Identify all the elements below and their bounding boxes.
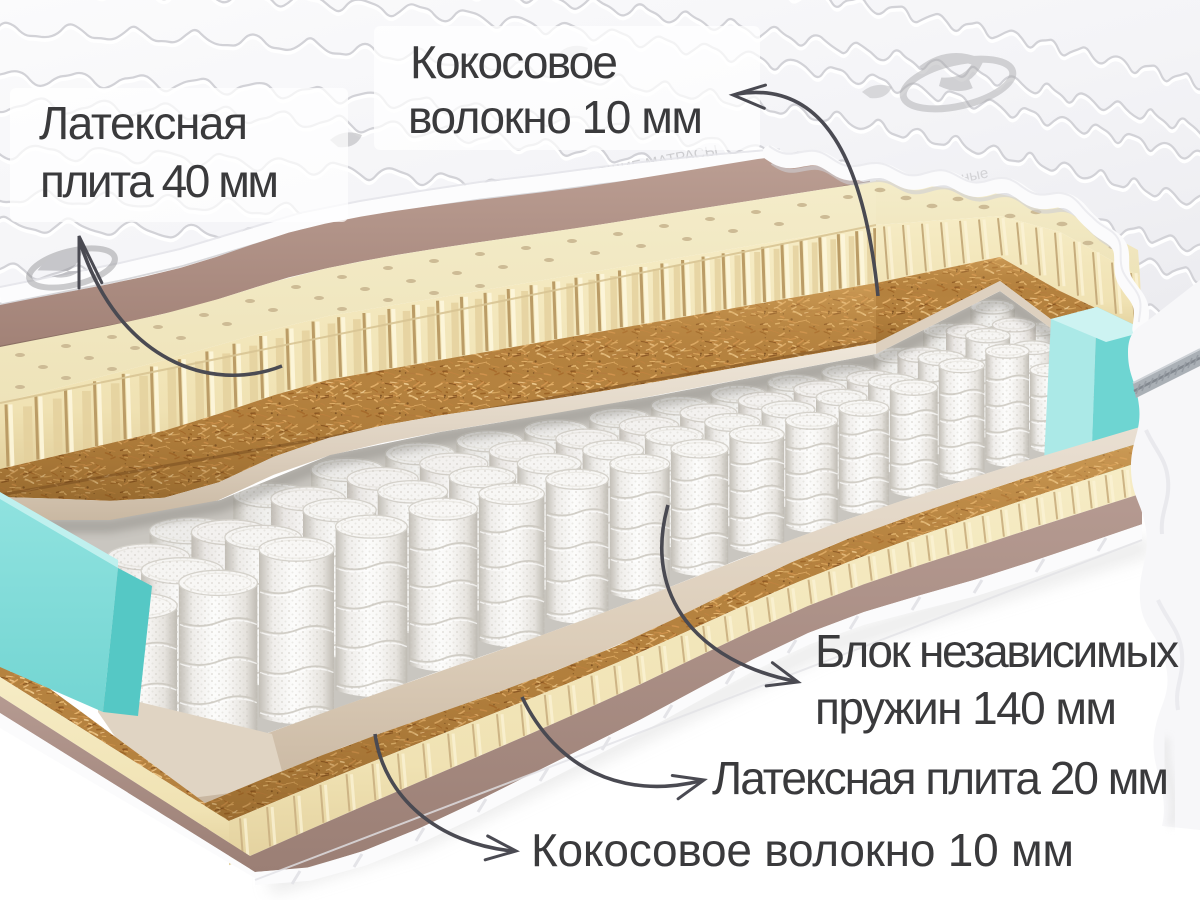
svg-text:Кокосовое: Кокосовое xyxy=(410,36,618,88)
svg-text:волокно 10 мм: волокно 10 мм xyxy=(408,91,703,143)
svg-text:Блок независимых: Блок независимых xyxy=(815,625,1179,677)
svg-text:пружин 140 мм: пружин 140 мм xyxy=(815,682,1117,734)
svg-text:Кокосовое волокно 10 мм: Кокосовое волокно 10 мм xyxy=(531,824,1074,876)
svg-text:Латексная: Латексная xyxy=(39,97,248,149)
svg-text:Латексная плита 20 мм: Латексная плита 20 мм xyxy=(712,752,1169,804)
svg-text:плита 40 мм: плита 40 мм xyxy=(40,155,279,207)
